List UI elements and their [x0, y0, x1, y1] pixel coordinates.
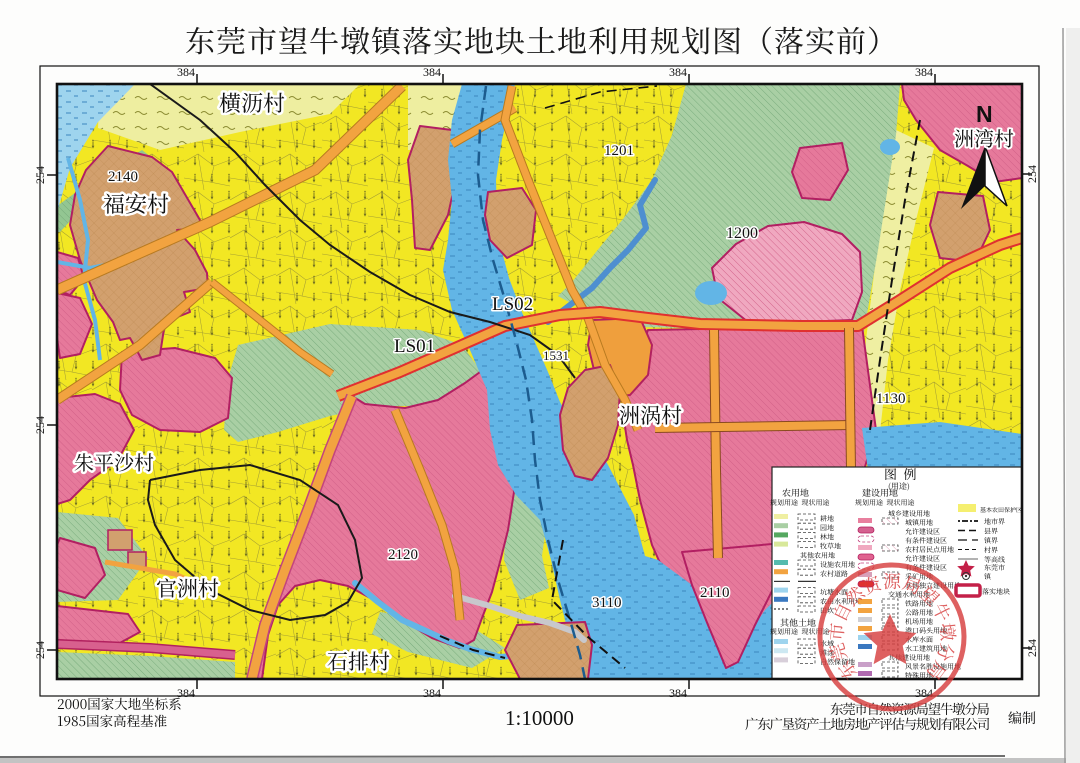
- svg-text:1201: 1201: [604, 143, 634, 159]
- svg-text:384: 384: [669, 686, 687, 700]
- svg-text:254: 254: [1025, 165, 1039, 183]
- svg-text:254: 254: [33, 166, 47, 184]
- svg-text:384: 384: [423, 65, 441, 79]
- svg-text:1130: 1130: [876, 391, 905, 407]
- svg-text:254: 254: [33, 416, 47, 434]
- svg-text:254: 254: [1025, 639, 1039, 657]
- svg-text:2120: 2120: [388, 547, 418, 563]
- svg-text:384: 384: [915, 65, 933, 79]
- svg-text:2110: 2110: [700, 585, 729, 601]
- svg-text:384: 384: [669, 65, 687, 79]
- svg-text:LS02: LS02: [492, 294, 533, 315]
- svg-text:2140: 2140: [108, 169, 138, 185]
- svg-text:1531: 1531: [543, 348, 569, 363]
- svg-text:384: 384: [423, 686, 441, 700]
- svg-text:LS01: LS01: [394, 336, 435, 357]
- svg-text:1200: 1200: [726, 225, 758, 242]
- svg-text:3110: 3110: [592, 595, 621, 611]
- svg-text:N: N: [976, 101, 993, 127]
- svg-text:1:10000: 1:10000: [505, 706, 574, 730]
- svg-text:384: 384: [177, 686, 195, 700]
- svg-text:384: 384: [177, 65, 195, 79]
- svg-text:254: 254: [33, 641, 47, 659]
